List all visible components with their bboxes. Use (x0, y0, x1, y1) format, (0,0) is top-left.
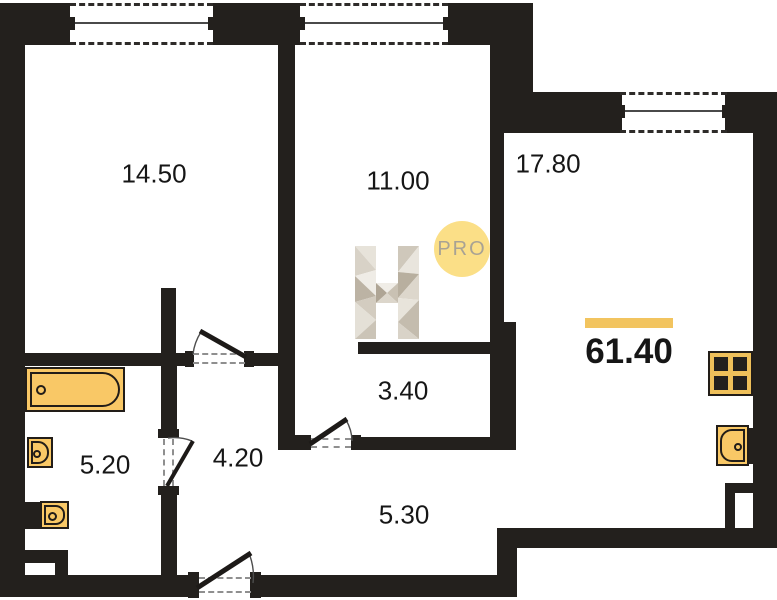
room-label-4-20: 4.20 (213, 443, 264, 474)
pro-badge: PRO (434, 221, 490, 277)
sink-drain (33, 450, 41, 458)
bathtub-icon (25, 367, 125, 412)
room-label-17-80: 17.80 (515, 149, 580, 180)
brand-logo-h-icon (355, 246, 419, 339)
total-area-label: 61.40 (585, 332, 673, 372)
kitchen-sink-drain (734, 443, 742, 451)
vent-pane (714, 376, 728, 390)
toilet-icon (40, 501, 69, 529)
toilet-drain (48, 512, 57, 521)
room-label-5-20: 5.20 (80, 450, 131, 481)
pro-badge-text: PRO (437, 238, 486, 261)
bathtub-drain (36, 385, 46, 395)
room-label-14-50: 14.50 (121, 159, 186, 190)
sink-icon (27, 437, 53, 468)
room-label-3-40: 3.40 (378, 376, 429, 407)
room-label-5-30: 5.30 (379, 500, 430, 531)
floor-plan: PRO 14.50 11.00 17.80 3.40 4.20 5.20 5.3… (0, 0, 777, 600)
total-area-accent-bar (585, 318, 673, 328)
vent-shaft-icon (708, 351, 753, 396)
kitchen-sink-icon (716, 425, 749, 466)
vent-pane (714, 357, 728, 371)
room-label-11-00: 11.00 (366, 166, 429, 197)
vent-pane (733, 357, 747, 371)
vent-pane (733, 376, 747, 390)
